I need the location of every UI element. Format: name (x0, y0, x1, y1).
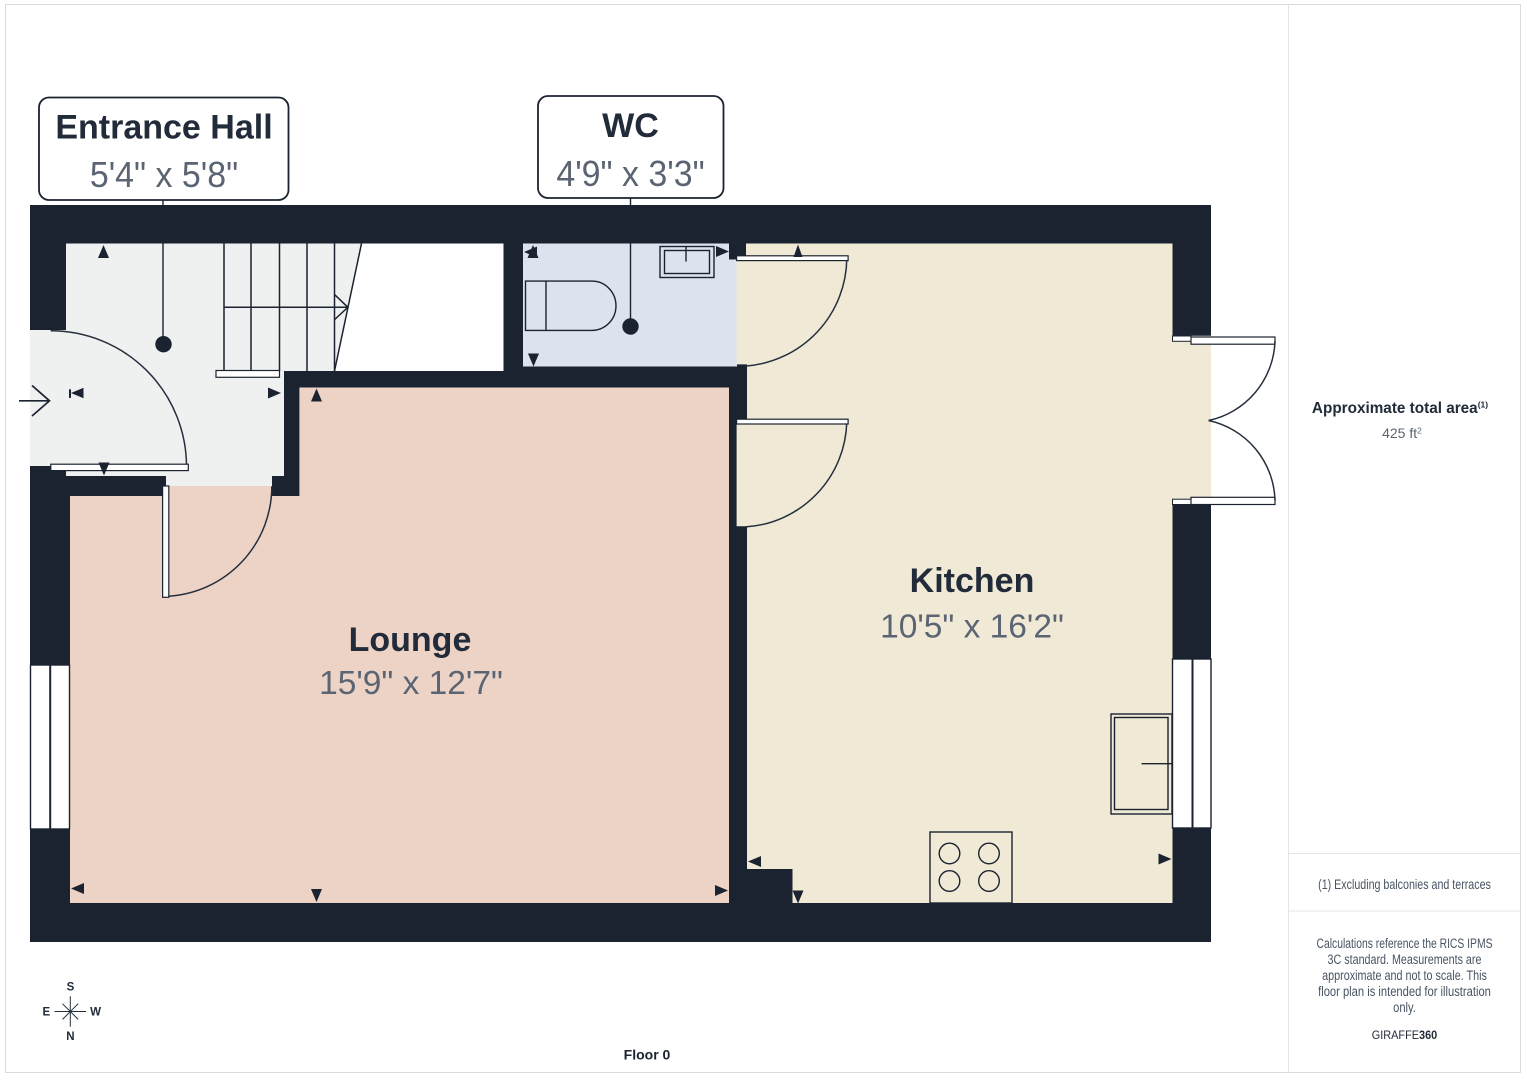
svg-text:15'9" x 12'7": 15'9" x 12'7" (319, 665, 503, 702)
svg-text:E: E (42, 1007, 50, 1019)
svg-text:Lounge: Lounge (349, 621, 472, 659)
svg-text:425 ft2: 425 ft2 (1382, 425, 1422, 441)
svg-text:Calculations reference the RIC: Calculations reference the RICS IPMS (1317, 935, 1493, 951)
svg-text:approximate and not to scale.: approximate and not to scale. This (1322, 968, 1487, 984)
svg-text:WC: WC (602, 107, 659, 145)
svg-text:10'5" x 16'2": 10'5" x 16'2" (880, 608, 1064, 645)
svg-text:Kitchen: Kitchen (910, 562, 1035, 600)
svg-text:W: W (90, 1007, 101, 1019)
svg-text:floor plan is intended for ill: floor plan is intended for illustration (1318, 984, 1491, 999)
svg-text:N: N (66, 1031, 74, 1043)
svg-text:3C standard. Measurements are: 3C standard. Measurements are (1328, 952, 1482, 968)
svg-text:Entrance Hall: Entrance Hall (55, 109, 272, 147)
svg-text:4'9" x 3'3": 4'9" x 3'3" (556, 154, 704, 194)
svg-text:Approximate total area(1): Approximate total area(1) (1312, 400, 1488, 418)
svg-text:Floor 0: Floor 0 (624, 1047, 671, 1063)
svg-text:S: S (67, 982, 75, 994)
svg-text:5'4" x 5'8": 5'4" x 5'8" (90, 155, 238, 195)
svg-text:GIRAFFE360: GIRAFFE360 (1372, 1030, 1438, 1043)
svg-text:only.: only. (1393, 1000, 1416, 1015)
svg-text:(1) Excluding balconies and te: (1) Excluding balconies and terraces (1318, 877, 1491, 893)
